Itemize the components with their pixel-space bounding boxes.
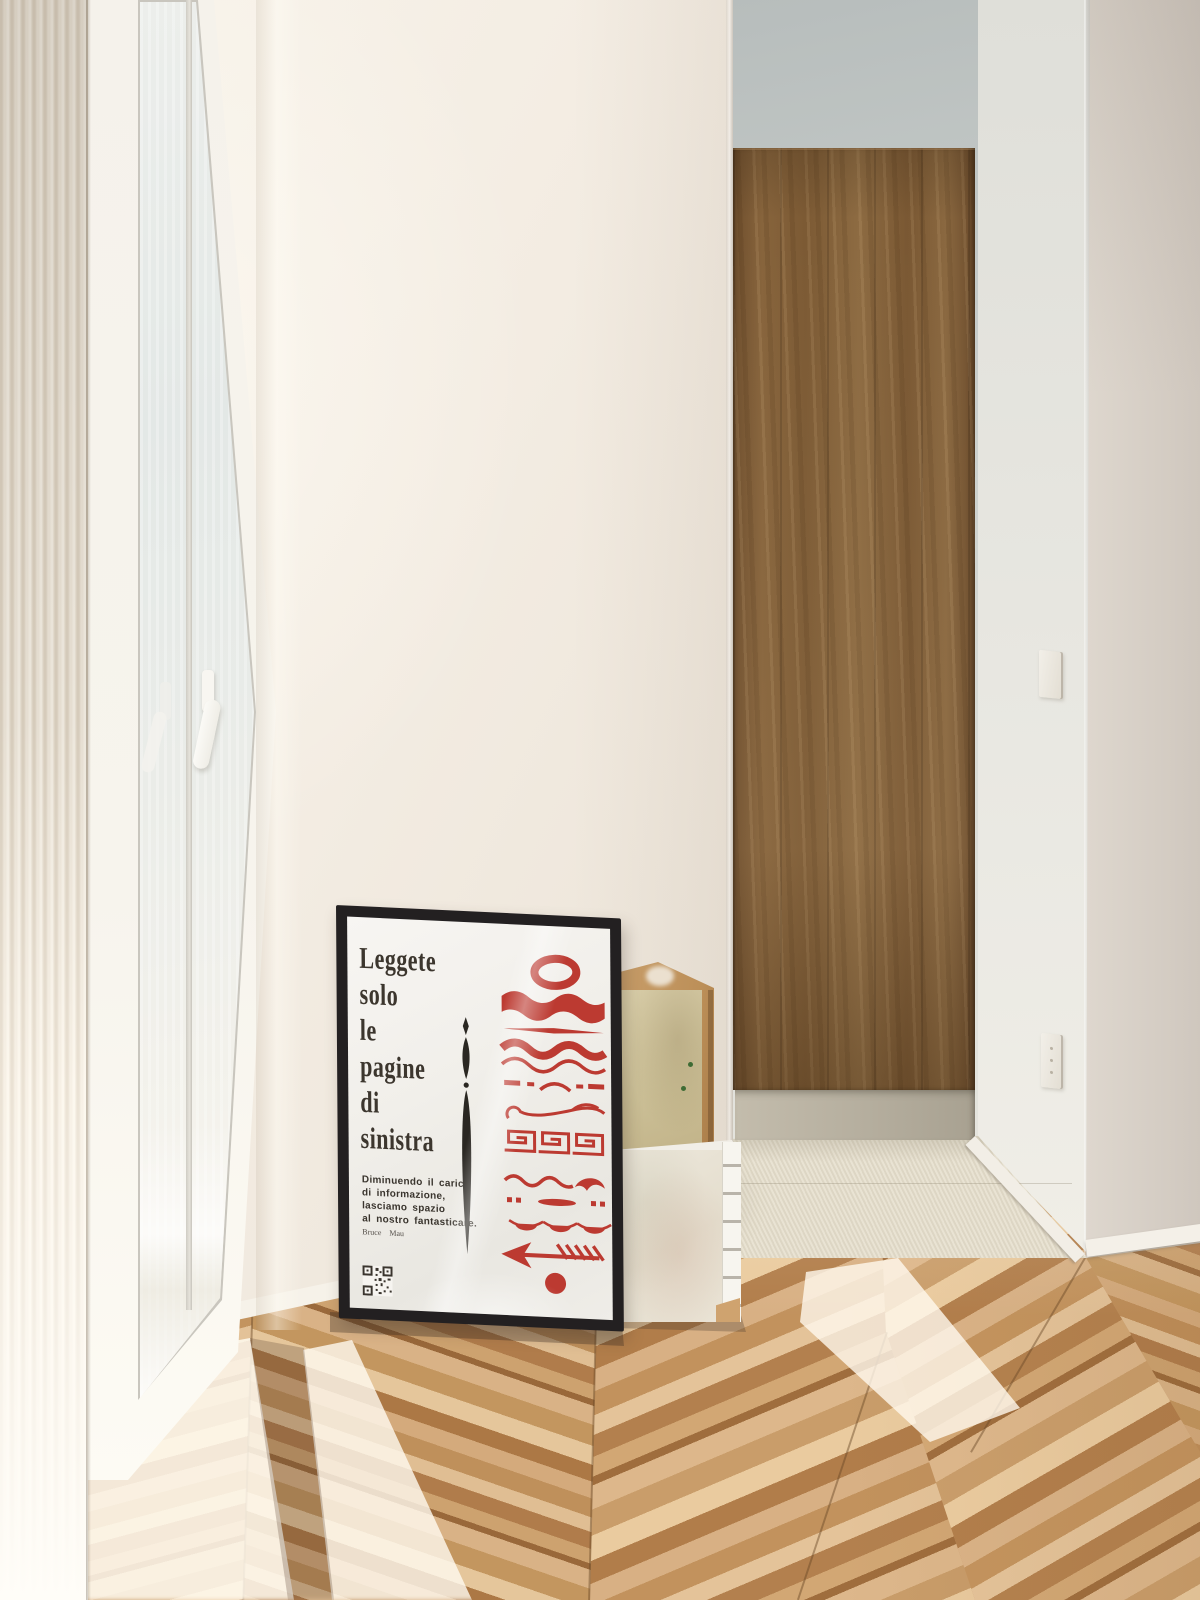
- wave-crest-ornament: [505, 1174, 605, 1191]
- paint-smudge: [646, 966, 674, 986]
- poster-attribution: Bruce Mau: [362, 1227, 404, 1238]
- old-canvas-surface: [620, 990, 702, 1152]
- dot-dash-ornament: [507, 1197, 605, 1208]
- interior-photo: Leggete solo le pagine di sinistra Dimin…: [0, 0, 1200, 1600]
- wardrobe-plinth: [735, 1088, 975, 1140]
- white-canvas-face: [614, 1150, 722, 1322]
- glass-glare: [347, 917, 613, 1321]
- canvas-edge-shadow: [708, 990, 713, 1152]
- double-wave-ornament: [502, 1042, 605, 1059]
- panel-gap: [86, 0, 91, 1600]
- arrow-left-ornament: [501, 1241, 603, 1272]
- poster-title-line: le: [360, 1015, 377, 1046]
- poster-title-line: sinistra: [361, 1123, 435, 1157]
- ring-ornament: [533, 958, 577, 987]
- dot-ornament: [545, 1272, 566, 1294]
- power-outlet: [1041, 1033, 1063, 1089]
- framed-poster: Leggete solo le pagine di sinistra Dimin…: [336, 905, 624, 1332]
- poster-title-line: pagine: [360, 1051, 425, 1084]
- niche-side-wall: [978, 0, 1090, 1258]
- window-reveal-corner: [256, 0, 302, 1330]
- scallop-ornament: [509, 1220, 611, 1234]
- wave-band-ornament: [502, 991, 605, 1024]
- ornament-column: [495, 934, 613, 1298]
- paint-speck: [681, 1086, 686, 1091]
- fluted-panel: [0, 0, 88, 1600]
- poster-title-line: Leggete: [359, 943, 436, 977]
- poster-paper: Leggete solo le pagine di sinistra Dimin…: [347, 917, 613, 1321]
- wardrobe-wood-panel: [733, 148, 975, 1090]
- dash-dot-ornament: [504, 1080, 604, 1093]
- right-wall-shade: [1086, 0, 1200, 400]
- swirl-ornament: [507, 1101, 605, 1123]
- poster-title-line: solo: [360, 979, 399, 1011]
- qr-code: [363, 1265, 393, 1296]
- light-switch: [1039, 650, 1063, 700]
- paint-speck: [688, 1062, 693, 1067]
- greek-key-ornament: [505, 1131, 603, 1155]
- poster-title-line: di: [360, 1087, 380, 1118]
- window-stile: [186, 0, 192, 1310]
- tapered-rule-ornament: [504, 1026, 604, 1036]
- white-canvas-side: [722, 1142, 741, 1322]
- wall-edge: [726, 0, 733, 1250]
